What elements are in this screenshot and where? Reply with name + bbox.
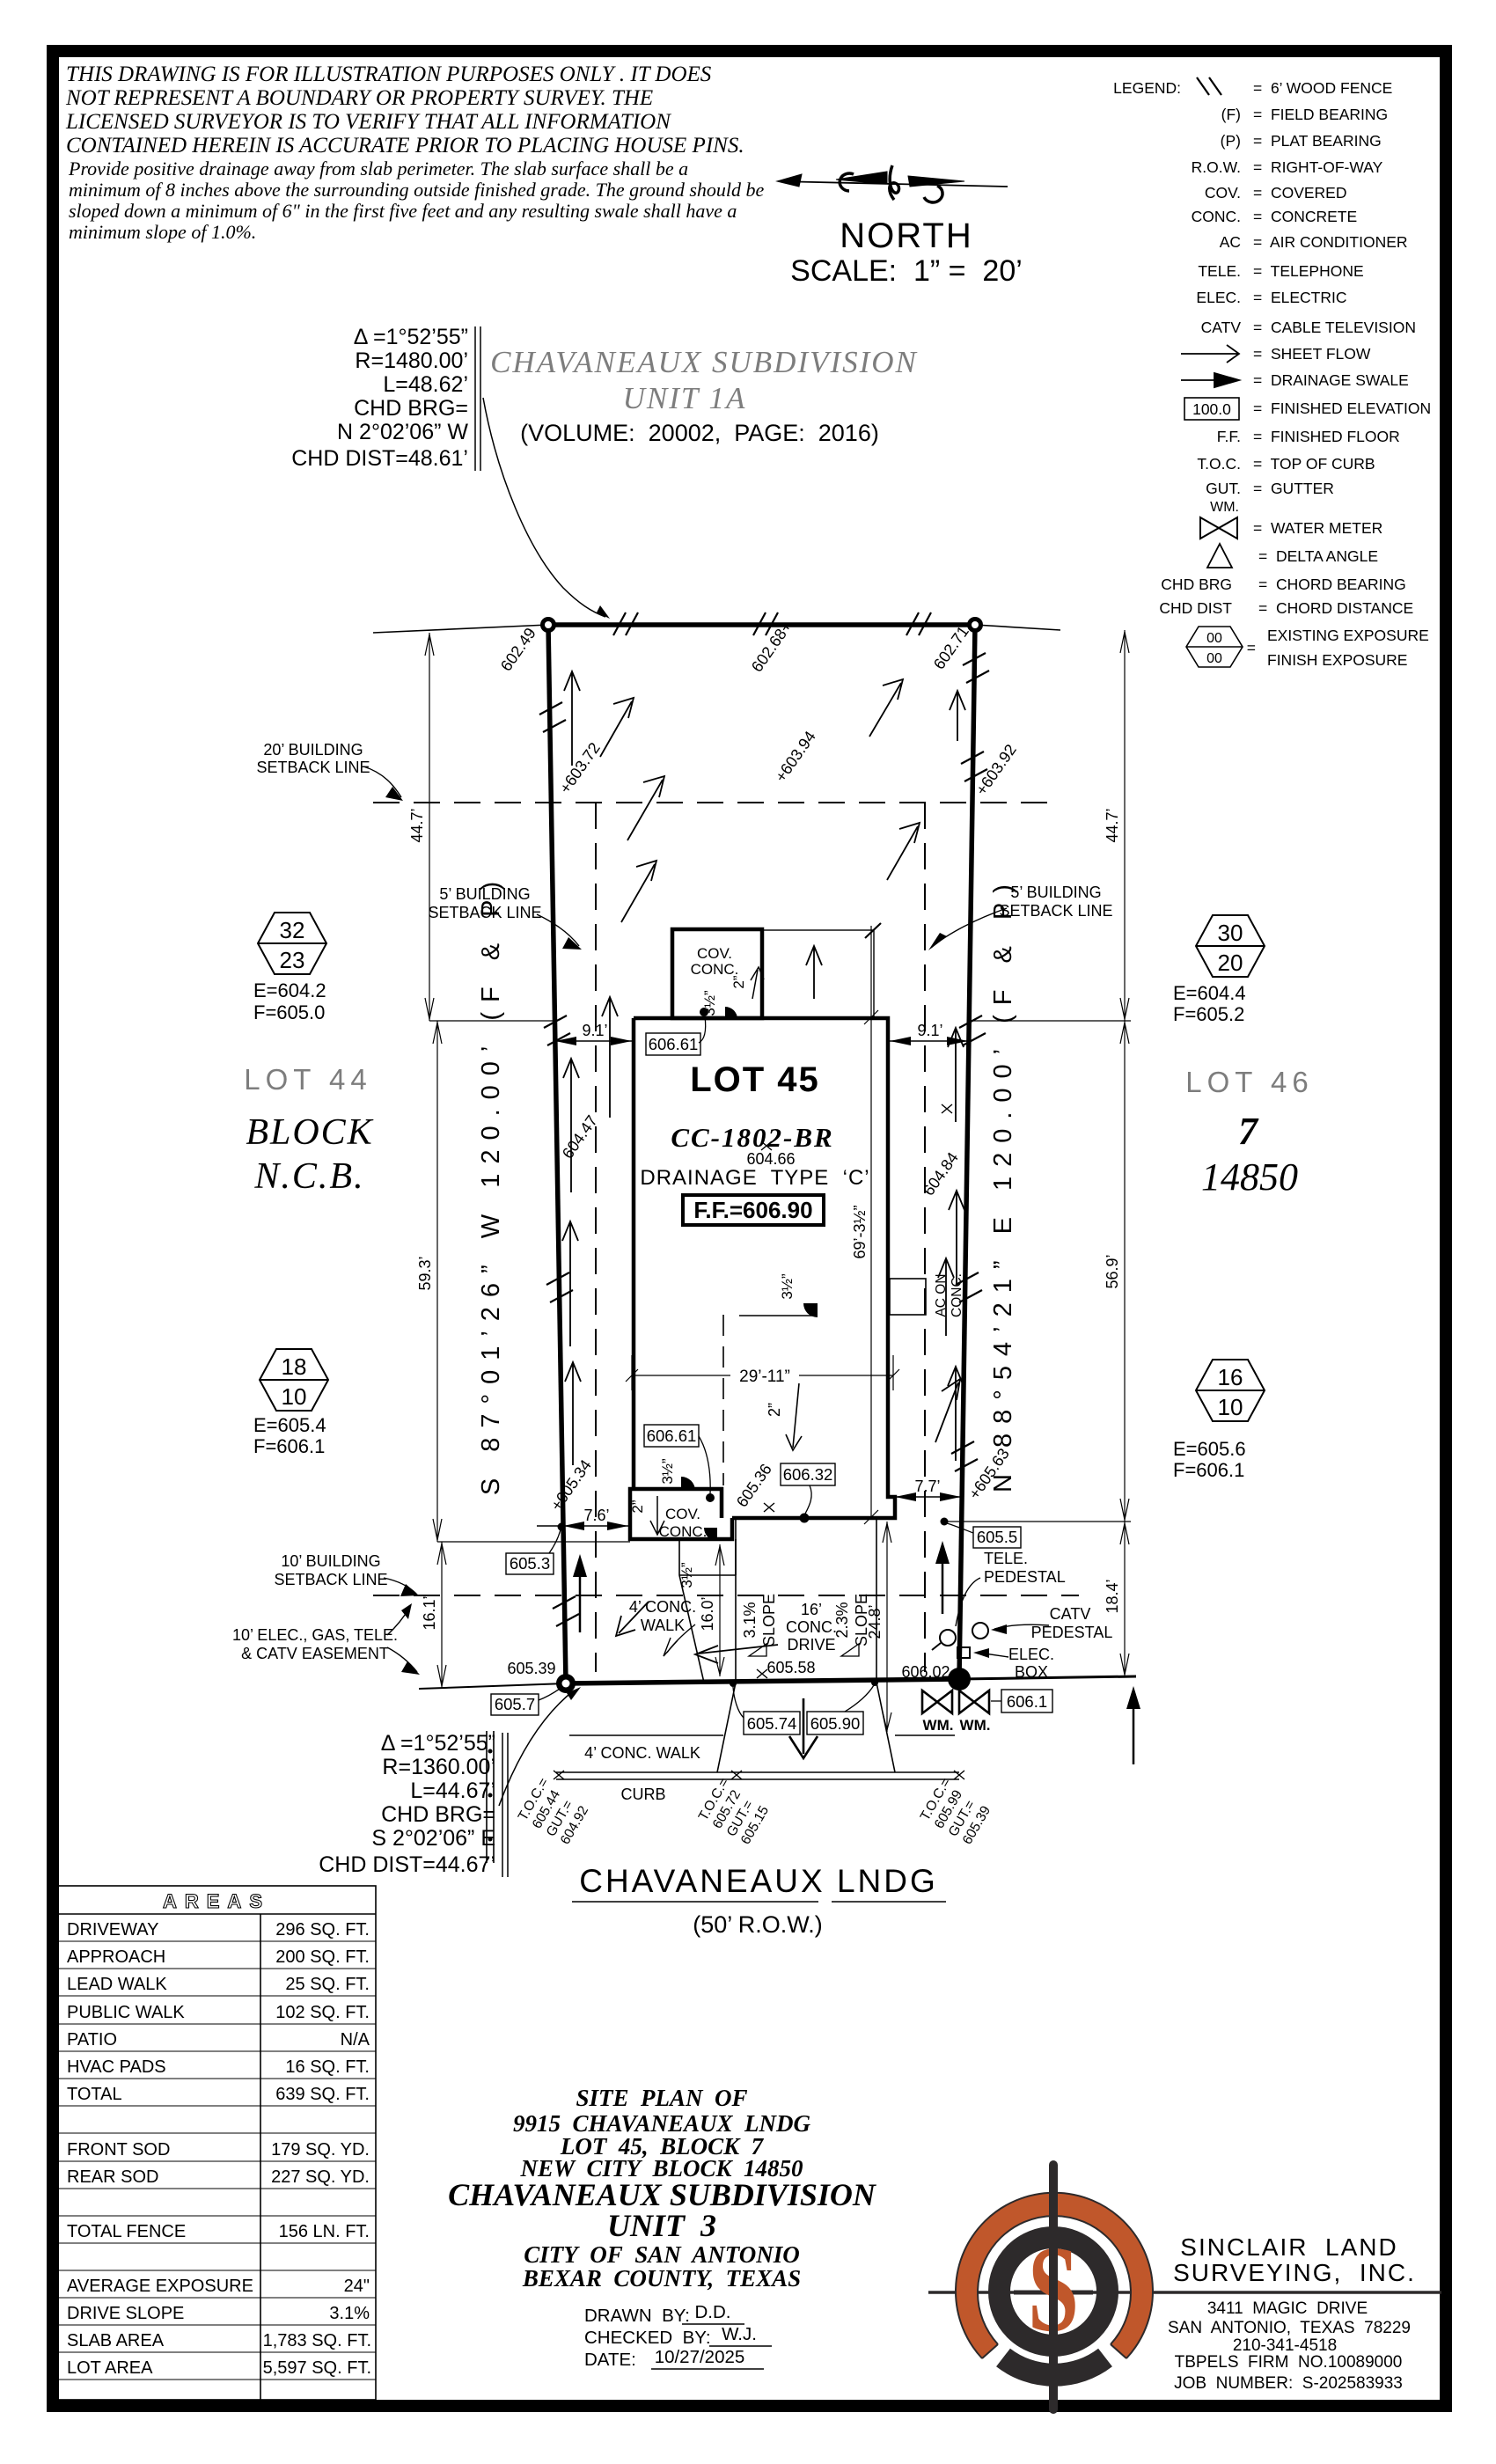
svg-text:102 SQ. FT.: 102 SQ. FT.	[275, 2003, 370, 2022]
svg-text:= WATER METER: = WATER METER	[1253, 519, 1382, 537]
svg-text:7.7’: 7.7’	[914, 1478, 940, 1495]
svg-text:606.61: 606.61	[647, 1426, 697, 1445]
svg-text:(P): (P)	[1221, 132, 1241, 150]
svg-text:CHD BRG=: CHD BRG=	[381, 1802, 495, 1827]
svg-text:F=606.1: F=606.1	[1173, 1459, 1244, 1481]
svg-text:00: 00	[1206, 631, 1222, 646]
svg-text:16 SQ. FT.: 16 SQ. FT.	[285, 2057, 370, 2077]
svg-text:TOTAL: TOTAL	[67, 2085, 122, 2104]
svg-text:20’ BUILDING: 20’ BUILDING	[263, 741, 363, 759]
svg-text:SETBACK LINE: SETBACK LINE	[256, 759, 370, 776]
svg-text:2”: 2”	[766, 1403, 783, 1417]
svg-text:BEXAR COUNTY, TEXAS: BEXAR COUNTY, TEXAS	[522, 2265, 801, 2292]
svg-text:= PLAT BEARING: = PLAT BEARING	[1253, 132, 1382, 150]
svg-text:=: =	[1247, 639, 1256, 656]
svg-text:FINISH EXPOSURE: FINISH EXPOSURE	[1267, 651, 1407, 669]
svg-text:1,783 SQ. FT.: 1,783 SQ. FT.	[263, 2331, 371, 2350]
svg-text:+603.72: +603.72	[556, 739, 604, 796]
svg-text:602.71: 602.71	[930, 623, 972, 673]
svg-text:= COVERED: = COVERED	[1253, 184, 1347, 202]
svg-text:(VOLUME: 20002, PAGE: 2016): (VOLUME: 20002, PAGE: 2016)	[520, 420, 879, 446]
svg-text:44.7’: 44.7’	[1104, 808, 1121, 842]
svg-text:CATV: CATV	[1201, 319, 1242, 336]
svg-text:3½”: 3½”	[779, 1273, 796, 1300]
svg-text:L=44.67’: L=44.67’	[410, 1778, 495, 1803]
svg-text:APPROACH: APPROACH	[67, 1947, 165, 1967]
svg-text:AC: AC	[1220, 233, 1241, 251]
svg-text:DATE:: DATE:	[584, 2350, 636, 2370]
svg-text:EXISTING EXPOSURE: EXISTING EXPOSURE	[1267, 627, 1429, 644]
svg-text:W.J.: W.J.	[722, 2324, 757, 2344]
svg-text:604.66: 604.66	[746, 1150, 795, 1168]
svg-text:CONTAINED HEREIN IS ACCURATE P: CONTAINED HEREIN IS ACCURATE PRIOR TO PL…	[66, 134, 744, 158]
svg-text:+605.34: +605.34	[547, 1456, 595, 1514]
svg-text:AVERAGE EXPOSURE: AVERAGE EXPOSURE	[67, 2277, 253, 2296]
svg-text:24": 24"	[344, 2277, 370, 2296]
svg-text:3411 MAGIC DRIVE: 3411 MAGIC DRIVE	[1207, 2299, 1368, 2318]
svg-text:PATIO: PATIO	[67, 2030, 117, 2050]
svg-text:210-341-4518: 210-341-4518	[1233, 2336, 1337, 2355]
svg-text:E=604.4: E=604.4	[1173, 982, 1246, 1004]
svg-text:UNIT 1A: UNIT 1A	[623, 381, 747, 415]
svg-text:NORTH: NORTH	[840, 216, 972, 255]
svg-text:7: 7	[1238, 1110, 1259, 1153]
svg-text:16.0’: 16.0’	[699, 1596, 716, 1631]
svg-text:CHD BRG=: CHD BRG=	[354, 396, 468, 421]
svg-text:SLAB AREA: SLAB AREA	[67, 2331, 165, 2350]
svg-text:= CONCRETE: = CONCRETE	[1253, 208, 1357, 225]
svg-text:= RIGHT-OF-WAY: = RIGHT-OF-WAY	[1253, 158, 1383, 176]
svg-text:200 SQ. FT.: 200 SQ. FT.	[275, 1947, 370, 1967]
svg-text:(F): (F)	[1221, 106, 1241, 123]
svg-text:S 87°01’26” W 120.00’ (F & P): S 87°01’26” W 120.00’ (F & P)	[477, 872, 505, 1495]
svg-text:N 88°54’21” E 120.00’ (F & P): N 88°54’21” E 120.00’ (F & P)	[989, 875, 1017, 1492]
svg-text:= FIELD BEARING: = FIELD BEARING	[1253, 106, 1388, 123]
svg-text:10: 10	[282, 1383, 307, 1410]
svg-text:3.1%: 3.1%	[329, 2304, 370, 2323]
svg-text:602.49: 602.49	[497, 625, 539, 675]
svg-text:CONC.: CONC.	[786, 1618, 837, 1636]
svg-text:COV.: COV.	[697, 945, 732, 962]
svg-text:16.1’: 16.1’	[421, 1595, 438, 1630]
svg-text:Δ =1°52’55”: Δ =1°52’55”	[354, 325, 468, 349]
svg-text:S 2°02’06” E: S 2°02’06” E	[371, 1826, 495, 1851]
svg-text:= TELEPHONE: = TELEPHONE	[1253, 262, 1364, 280]
svg-text:605.36: 605.36	[733, 1461, 775, 1511]
svg-text:HVAC PADS: HVAC PADS	[67, 2057, 166, 2077]
svg-text:L=48.62’: L=48.62’	[383, 372, 468, 397]
svg-text:3½”: 3½”	[701, 990, 718, 1016]
svg-text:R=1480.00’: R=1480.00’	[355, 348, 468, 373]
svg-text:AREAS: AREAS	[163, 1890, 270, 1912]
svg-text:CHAVANEAUX SUBDIVISION: CHAVANEAUX SUBDIVISION	[448, 2177, 877, 2212]
svg-text:Provide positive drainage away: Provide positive drainage away from slab…	[68, 158, 688, 180]
svg-text:= CABLE TELEVISION: = CABLE TELEVISION	[1253, 319, 1416, 336]
svg-text:LEGEND:: LEGEND:	[1113, 79, 1181, 97]
svg-text:= DELTA ANGLE: = DELTA ANGLE	[1258, 547, 1378, 565]
svg-text:TOTAL FENCE: TOTAL FENCE	[67, 2222, 186, 2241]
svg-text:10: 10	[1218, 1394, 1243, 1420]
svg-text:F=605.2: F=605.2	[1173, 1003, 1244, 1025]
svg-text:SAN ANTONIO, TEXAS 78229: SAN ANTONIO, TEXAS 78229	[1168, 2319, 1411, 2337]
svg-text:SETBACK LINE: SETBACK LINE	[274, 1571, 387, 1588]
svg-text:606.32: 606.32	[783, 1465, 833, 1484]
svg-text:179 SQ. YD.: 179 SQ. YD.	[271, 2140, 370, 2160]
svg-text:69’-3½”: 69’-3½”	[851, 1205, 869, 1258]
svg-text:10/27/2025: 10/27/2025	[655, 2347, 745, 2367]
svg-text:44.7’: 44.7’	[408, 808, 426, 842]
svg-text:= DRAINAGE SWALE: = DRAINAGE SWALE	[1253, 371, 1409, 389]
svg-text:REAR SOD: REAR SOD	[67, 2167, 158, 2187]
svg-text:F=606.1: F=606.1	[253, 1435, 325, 1457]
svg-text:NOT REPRESENT A BOUNDARY OR PR: NOT REPRESENT A BOUNDARY OR PROPERTY SUR…	[65, 86, 653, 110]
svg-text:16’: 16’	[801, 1601, 822, 1618]
svg-text:4’ CONC. WALK: 4’ CONC. WALK	[584, 1744, 700, 1762]
svg-text:605.5: 605.5	[977, 1528, 1017, 1546]
svg-text:605.3: 605.3	[510, 1554, 550, 1573]
svg-text:606.1: 606.1	[1007, 1692, 1047, 1711]
svg-text:605.90: 605.90	[810, 1714, 861, 1733]
svg-text:CHECKED BY:: CHECKED BY:	[584, 2328, 711, 2348]
svg-text:18: 18	[282, 1353, 307, 1380]
svg-text:DRIVEWAY: DRIVEWAY	[67, 1920, 158, 1940]
svg-text:GUT.: GUT.	[1206, 480, 1241, 497]
svg-text:DRAWN BY:: DRAWN BY:	[584, 2306, 690, 2326]
svg-text:R.O.W.: R.O.W.	[1192, 158, 1241, 176]
svg-text:minimum slope of 1.0%.: minimum slope of 1.0%.	[69, 221, 256, 243]
svg-text:DRIVE SLOPE: DRIVE SLOPE	[67, 2304, 184, 2323]
svg-text:= GUTTER: = GUTTER	[1253, 480, 1334, 497]
svg-text:= FINISHED ELEVATION: = FINISHED ELEVATION	[1253, 400, 1431, 417]
svg-text:= SHEET FLOW: = SHEET FLOW	[1253, 345, 1371, 363]
svg-text:COV.: COV.	[1205, 184, 1241, 202]
svg-text:= CHORD DISTANCE: = CHORD DISTANCE	[1258, 599, 1413, 617]
svg-text:N 2°02’06” W: N 2°02’06” W	[337, 420, 468, 444]
svg-text:10’ BUILDING: 10’ BUILDING	[281, 1552, 380, 1570]
svg-text:CONC.: CONC.	[691, 961, 739, 978]
svg-text:16: 16	[1218, 1364, 1243, 1390]
svg-text:N/A: N/A	[341, 2030, 370, 2050]
svg-text:E=605.6: E=605.6	[1173, 1438, 1246, 1460]
svg-text:= TOP OF CURB: = TOP OF CURB	[1253, 455, 1375, 473]
svg-text:CHD DIST=44.67’: CHD DIST=44.67’	[319, 1852, 495, 1877]
svg-text:TELE.: TELE.	[984, 1550, 1028, 1567]
svg-text:= AIR CONDITIONER: = AIR CONDITIONER	[1253, 233, 1408, 251]
svg-text:F.F.=606.90: F.F.=606.90	[693, 1197, 812, 1223]
svg-text:JOB NUMBER: S-202583933: JOB NUMBER: S-202583933	[1174, 2374, 1403, 2393]
svg-text:SITE PLAN OF: SITE PLAN OF	[576, 2085, 747, 2111]
svg-text:5,597 SQ. FT.: 5,597 SQ. FT.	[263, 2358, 371, 2378]
svg-text:F.F.: F.F.	[1217, 428, 1241, 445]
svg-text:E=605.4: E=605.4	[253, 1414, 326, 1436]
svg-text:296 SQ. FT.: 296 SQ. FT.	[275, 1920, 370, 1940]
svg-text:TBPELS FIRM NO.10089000: TBPELS FIRM NO.10089000	[1175, 2353, 1403, 2372]
svg-text:605.74: 605.74	[747, 1714, 797, 1733]
svg-text:639 SQ. FT.: 639 SQ. FT.	[275, 2085, 370, 2104]
svg-text:CHAVANEAUX LNDG: CHAVANEAUX LNDG	[579, 1863, 938, 1899]
svg-text:UNIT 3: UNIT 3	[607, 2208, 716, 2243]
svg-text:605.58: 605.58	[766, 1659, 815, 1676]
svg-text:WM.: WM.	[960, 1717, 991, 1734]
svg-text:4’ CONC.: 4’ CONC.	[629, 1598, 696, 1616]
svg-text:LEAD WALK: LEAD WALK	[67, 1975, 167, 1994]
svg-text:2”: 2”	[730, 975, 747, 988]
svg-text:CHD DIST: CHD DIST	[1159, 599, 1232, 617]
svg-text:LOT 44: LOT 44	[244, 1063, 371, 1096]
svg-text:= FINISHED FLOOR: = FINISHED FLOOR	[1253, 428, 1400, 445]
svg-text:CURB: CURB	[620, 1786, 665, 1803]
svg-text:10’ ELEC., GAS, TELE.: 10’ ELEC., GAS, TELE.	[232, 1626, 398, 1644]
svg-text:SURVEYING, INC.: SURVEYING, INC.	[1173, 2259, 1416, 2286]
svg-text:59.3’: 59.3’	[416, 1256, 434, 1290]
svg-text:BLOCK: BLOCK	[246, 1112, 373, 1153]
svg-text:2”: 2”	[629, 1500, 646, 1513]
svg-text:= ELECTRIC: = ELECTRIC	[1253, 289, 1347, 306]
svg-text:WM.: WM.	[1210, 500, 1239, 515]
svg-text:606.02: 606.02	[901, 1663, 950, 1681]
svg-text:56.9’: 56.9’	[1104, 1254, 1121, 1288]
svg-text:00: 00	[1206, 651, 1222, 666]
svg-text:3.1%: 3.1%	[741, 1602, 759, 1638]
svg-text:14850: 14850	[1201, 1155, 1298, 1199]
svg-text:minimum of 8 inches above the: minimum of 8 inches above the surroundin…	[69, 179, 765, 201]
svg-text:PEDESTAL: PEDESTAL	[1031, 1624, 1113, 1641]
svg-text:604.84: 604.84	[920, 1149, 962, 1199]
svg-text:32: 32	[280, 917, 305, 943]
svg-text:20: 20	[1218, 950, 1243, 976]
svg-text:BOX: BOX	[1015, 1663, 1048, 1681]
svg-text:2.3%: 2.3%	[833, 1602, 851, 1638]
svg-text:PEDESTAL: PEDESTAL	[984, 1568, 1066, 1586]
svg-text:= 6’ WOOD FENCE: = 6’ WOOD FENCE	[1253, 79, 1392, 97]
svg-text:29’-11”: 29’-11”	[739, 1368, 790, 1386]
svg-text:WALK: WALK	[641, 1617, 685, 1634]
svg-text:5’ BUILDING: 5’ BUILDING	[1010, 884, 1101, 901]
svg-text:& CATV EASEMENT: & CATV EASEMENT	[241, 1645, 389, 1662]
svg-text:ELEC.: ELEC.	[1008, 1646, 1054, 1663]
svg-text:D.D.: D.D.	[695, 2302, 731, 2322]
svg-text:(50’ R.O.W.): (50’ R.O.W.)	[693, 1911, 823, 1938]
svg-text:CHD DIST=48.61’: CHD DIST=48.61’	[291, 446, 468, 471]
svg-text:E=604.2: E=604.2	[253, 979, 326, 1001]
svg-text:100.0: 100.0	[1192, 400, 1231, 418]
svg-text:7.6’: 7.6’	[583, 1507, 609, 1524]
svg-text:F=605.0: F=605.0	[253, 1001, 325, 1023]
svg-text:605.39: 605.39	[507, 1660, 555, 1677]
svg-text:227 SQ. YD.: 227 SQ. YD.	[271, 2167, 370, 2187]
svg-text:156 LN. FT.: 156 LN. FT.	[279, 2222, 370, 2241]
svg-text:TELE.: TELE.	[1198, 262, 1241, 280]
svg-text:604.47: 604.47	[559, 1112, 601, 1162]
svg-text:25 SQ. FT.: 25 SQ. FT.	[285, 1975, 370, 1994]
svg-text:CONC.: CONC.	[659, 1523, 708, 1540]
svg-text:DRIVE: DRIVE	[787, 1636, 835, 1654]
svg-text:SINCLAIR LAND: SINCLAIR LAND	[1180, 2233, 1397, 2261]
svg-text:LOT 46: LOT 46	[1185, 1066, 1313, 1098]
svg-text:9.1’: 9.1’	[917, 1022, 942, 1039]
svg-text:CC-1802-BR: CC-1802-BR	[671, 1122, 833, 1153]
svg-text:DRAINAGE TYPE ‘C’: DRAINAGE TYPE ‘C’	[640, 1166, 869, 1190]
svg-text:= CHORD BEARING: = CHORD BEARING	[1258, 576, 1406, 593]
svg-text:605.7: 605.7	[495, 1695, 535, 1713]
svg-text:WM.: WM.	[923, 1717, 954, 1734]
svg-text:LOT AREA: LOT AREA	[67, 2358, 153, 2378]
svg-text:THIS DRAWING IS FOR ILLUSTRATI: THIS DRAWING IS FOR ILLUSTRATION PURPOSE…	[66, 62, 712, 86]
svg-text:18.4’: 18.4’	[1104, 1579, 1121, 1613]
svg-text:CONC.: CONC.	[1192, 208, 1241, 225]
svg-text:+603.92: +603.92	[972, 741, 1020, 798]
svg-text:CHD BRG: CHD BRG	[1161, 576, 1232, 593]
svg-text:LICENSED SURVEYOR IS TO VERIFY: LICENSED SURVEYOR IS TO VERIFY THAT ALL …	[65, 110, 671, 134]
svg-text:R=1360.00’: R=1360.00’	[382, 1755, 495, 1779]
svg-text:SLOPE: SLOPE	[853, 1594, 870, 1646]
svg-text:SLOPE: SLOPE	[760, 1594, 778, 1646]
svg-text:3½”: 3½”	[659, 1458, 676, 1485]
svg-text:+603.94: +603.94	[772, 728, 819, 785]
svg-text:ELEC.: ELEC.	[1196, 289, 1241, 306]
svg-text:9.1’: 9.1’	[582, 1022, 607, 1039]
svg-text:CATV: CATV	[1050, 1605, 1091, 1623]
svg-text:CHAVANEAUX SUBDIVISION: CHAVANEAUX SUBDIVISION	[490, 345, 918, 379]
svg-text:SCALE: 1” = 20’: SCALE: 1” = 20’	[790, 254, 1023, 288]
svg-text:PUBLIC WALK: PUBLIC WALK	[67, 2003, 185, 2022]
svg-text:Δ =1°52’55”: Δ =1°52’55”	[381, 1731, 495, 1756]
svg-text:23: 23	[280, 947, 305, 973]
svg-text:CITY OF SAN ANTONIO: CITY OF SAN ANTONIO	[524, 2241, 800, 2268]
svg-text:COV.: COV.	[665, 1506, 700, 1522]
svg-text:sloped down a minimum of 6" in: sloped down a minimum of 6" in the first…	[69, 200, 737, 222]
svg-text:30: 30	[1218, 920, 1243, 946]
svg-text:LOT 45: LOT 45	[690, 1060, 820, 1099]
svg-text:606.61: 606.61	[649, 1035, 699, 1053]
svg-text:N.C.B.: N.C.B.	[253, 1156, 364, 1197]
svg-text:T.O.C.: T.O.C.	[1197, 455, 1241, 473]
svg-text:FRONT SOD: FRONT SOD	[67, 2140, 170, 2160]
